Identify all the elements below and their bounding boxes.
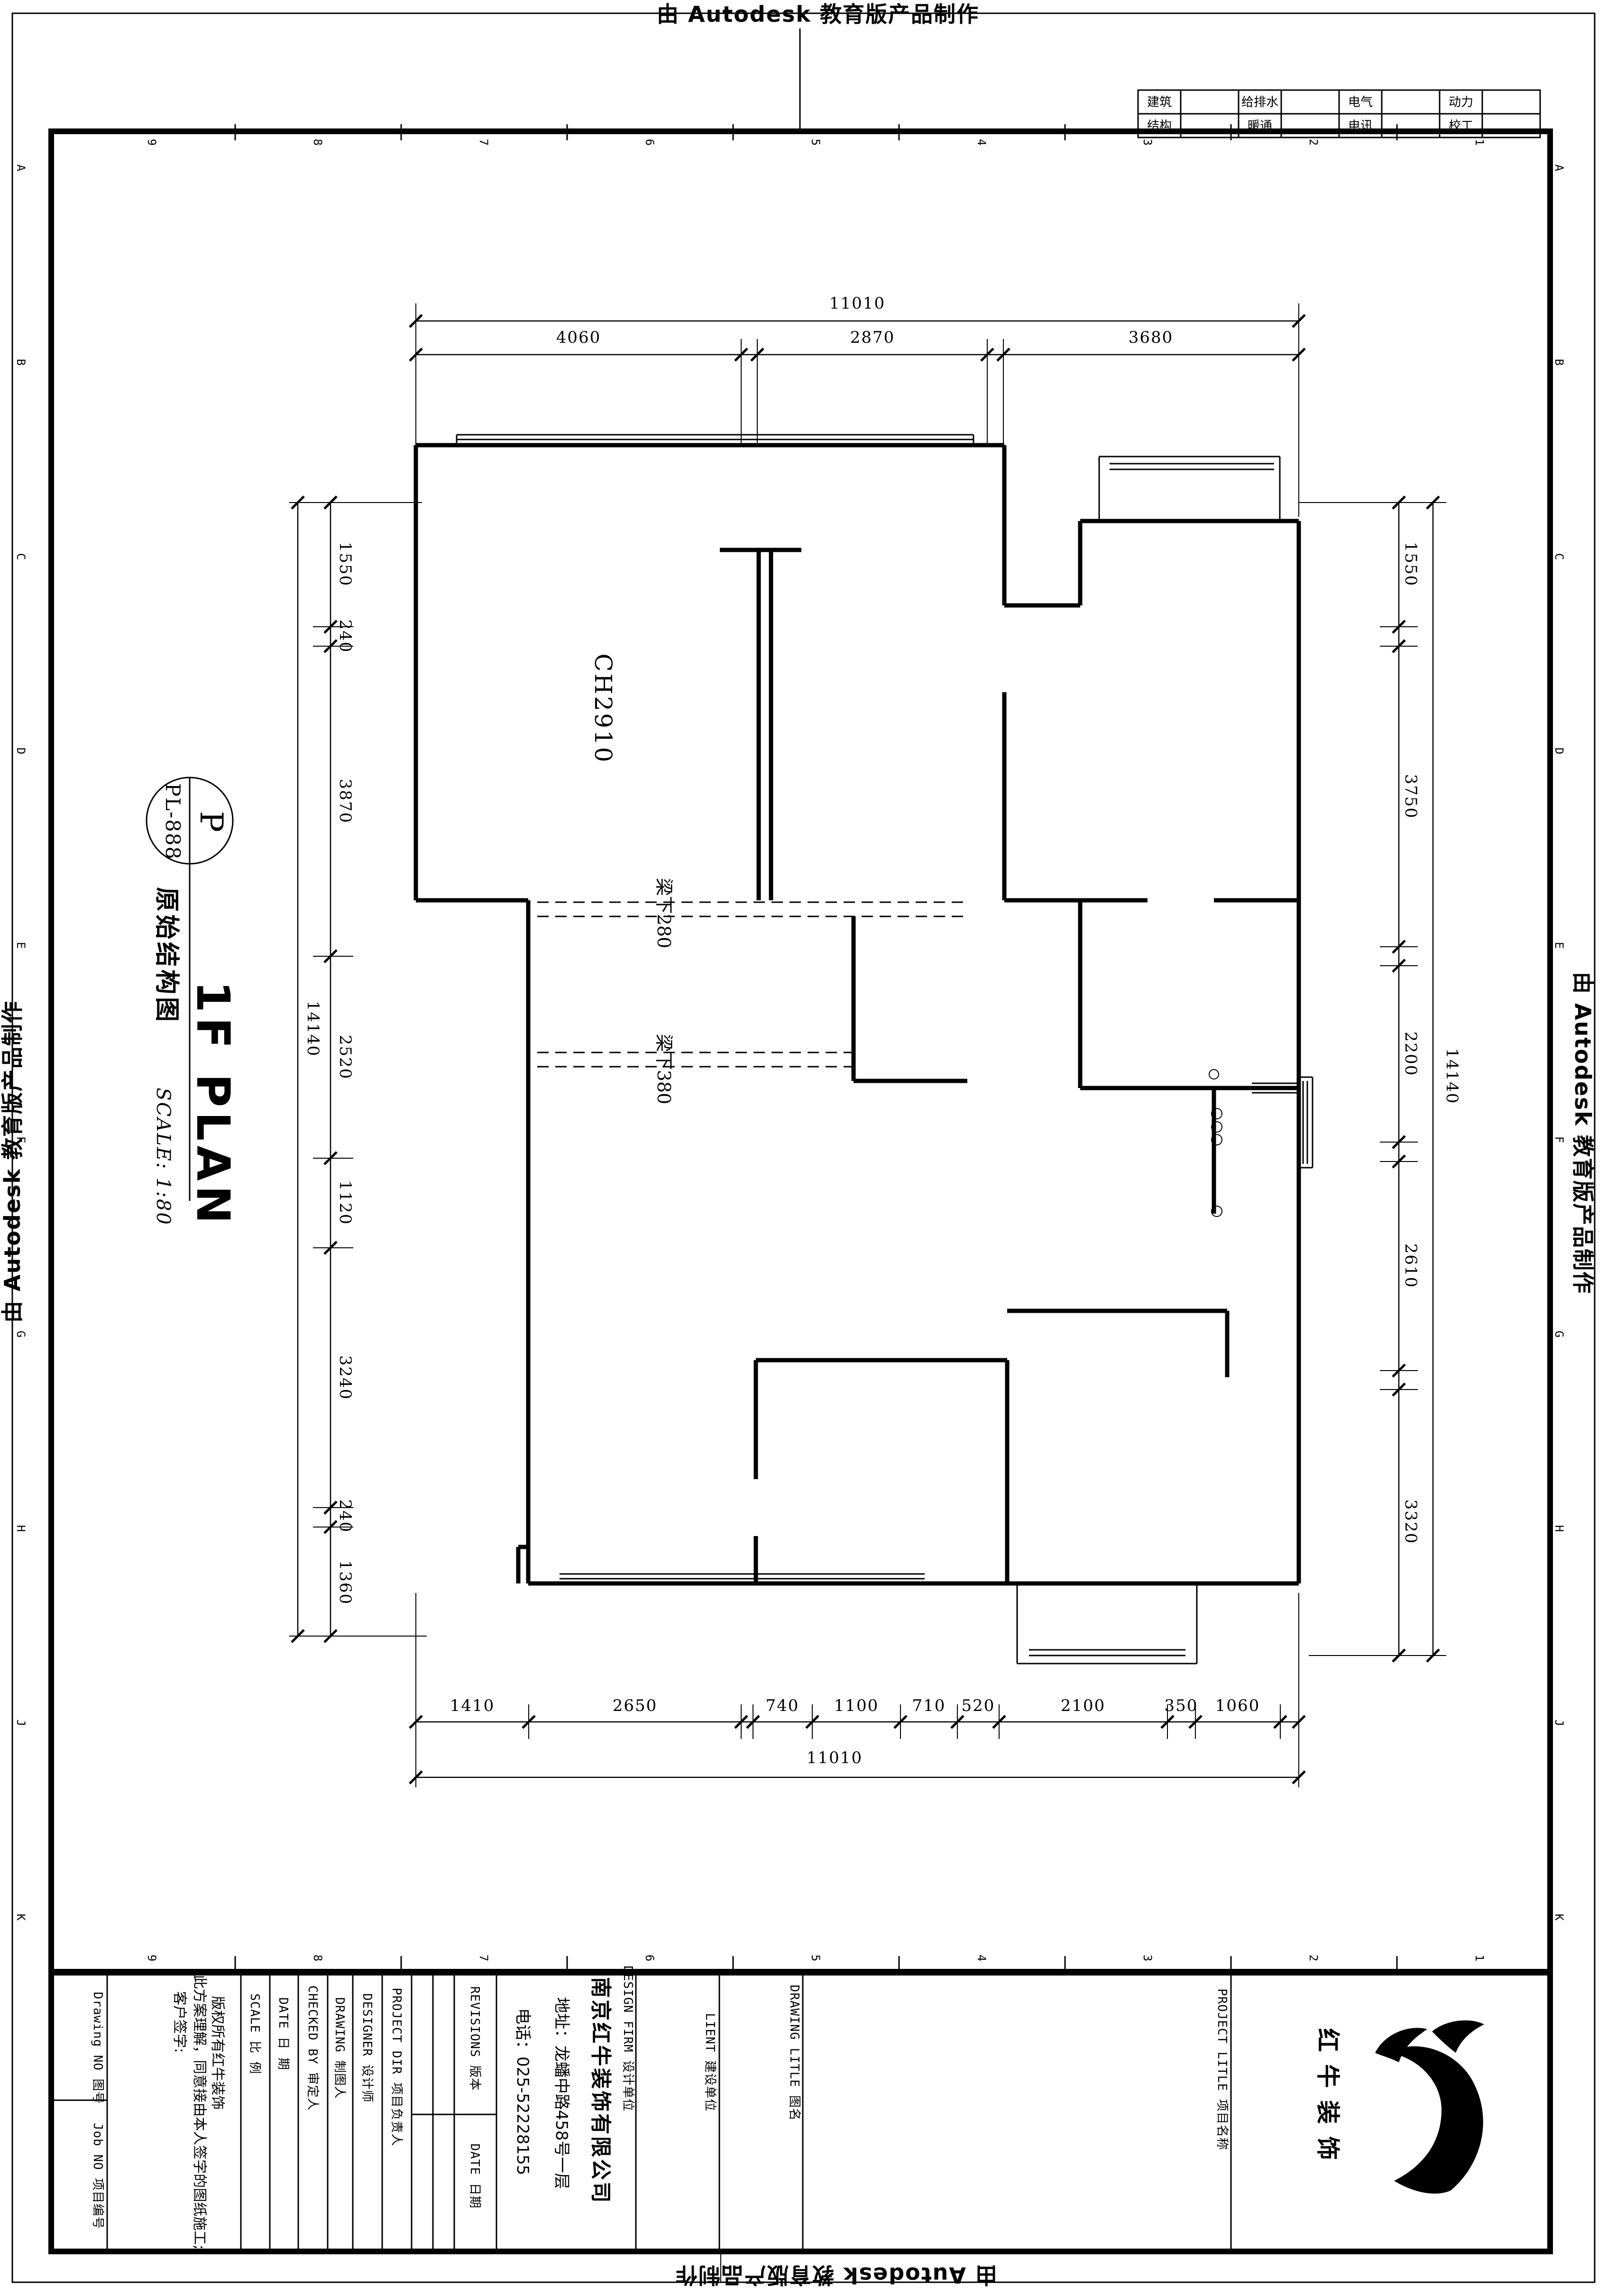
dim-bottom: 1100 [834,1698,879,1714]
dim-top-total: 11010 [829,295,885,311]
watermark-bottom: 由 Autodesk 教育版产品制作 [675,2264,997,2286]
ceiling-height-label: CH2910 [591,653,615,764]
dim-bottom: 1060 [1215,1698,1260,1714]
watermark-left: 由 Autodesk 教育版产品制作 [1,1000,23,1323]
dim-left: 1550 [337,542,353,587]
titleblock-revision-date: DATE 日期 [468,2143,481,2208]
dim-bottom: 710 [912,1698,946,1714]
titleblock-revisions: REVISIONS 版本 [468,1986,481,2091]
zone-number-top: 6 [644,139,655,146]
titleblock-designer: DESIGNER 设计师 [361,1994,373,2103]
zone-letter-left: J [15,1720,27,1726]
dim-left: 3870 [337,779,353,824]
titleblock-drawing-title: DRAWING LITLE 图名 [788,1985,800,2121]
discipline-structure: 结构 [1147,120,1172,132]
dim-bottom-total: 11010 [807,1750,863,1766]
zone-letter-right: E [1553,942,1565,949]
titleblock-client: LIENT 建设单位 [704,2013,716,2112]
logo-bull-icon [1375,2021,1484,2194]
discipline-hvac: 暖通 [1248,120,1272,132]
badge-plan-title: 1F PLAN [190,981,236,1228]
zone-number-top: 5 [810,139,821,146]
zone-number-top: 9 [146,139,157,146]
dim-right: 2610 [1403,1244,1419,1289]
dim-bottom: 740 [766,1698,799,1714]
watermark-top: 由 Autodesk 教育版产品制作 [657,3,979,25]
dim-top: 3680 [1129,329,1174,346]
zone-letter-left: B [15,359,27,366]
badge-scale: SCALE: 1:80 [154,1088,173,1226]
titleblock-drawing-by: DRAWING 制图人 [333,1997,346,2099]
zone-letter-left: H [15,1525,27,1532]
zone-number-bottom: 2 [1308,1955,1319,1961]
zone-letter-right: C [1553,553,1565,560]
zone-number-top: 1 [1474,139,1485,146]
dim-bottom: 350 [1165,1698,1198,1714]
zone-letter-right: G [1553,1331,1565,1337]
dim-left: 1120 [337,1180,353,1226]
zone-number-bottom: 8 [312,1955,323,1961]
discipline-check: 校工 [1449,120,1473,132]
zone-letter-right: B [1553,359,1565,366]
titleblock-copyright-line2: 此方案理解，同意接由本人签字的图纸施工; [192,1975,206,2250]
watermark-right: 由 Autodesk 教育版产品制作 [1572,972,1594,1294]
zone-number-bottom: 5 [810,1955,821,1961]
zone-letter-right: F [1553,1136,1565,1143]
dim-bottom: 2100 [1061,1698,1106,1714]
titleblock-project-title: PROJECT LITLE 项目名称 [1216,1988,1228,2150]
zone-letter-left: E [15,942,27,949]
titleblock-design-firm: DESIGN FIRM 设计单位 [622,1966,634,2112]
plan-drawing-svg [0,0,1607,2296]
dim-right: 2200 [1403,1032,1419,1077]
zone-number-top: 3 [1142,139,1153,146]
dim-left: 240 [337,1500,353,1533]
zone-number-bottom: 9 [146,1955,157,1961]
dim-bottom: 1410 [450,1698,495,1714]
discipline-electrical: 电气 [1348,96,1373,109]
beam-lines [537,902,967,1067]
zone-letter-left: G [15,1331,27,1337]
zone-number-bottom: 1 [1474,1955,1485,1961]
zone-letter-left: K [15,1914,27,1921]
titleblock-company-phone: 电话：025-52228155 [514,2008,531,2175]
extension-lines [289,303,1446,1787]
zone-letter-left: A [15,165,27,171]
dim-left: 2520 [337,1035,353,1080]
drawing-sheet: 由 Autodesk 教育版产品制作 由 Autodesk 教育版产品制作 由 … [0,0,1607,2296]
sheet-borders [12,13,1595,2282]
dimension-ticks [292,315,1439,1784]
discipline-architecture: 建筑 [1147,96,1172,109]
zone-number-bottom: 3 [1142,1955,1153,1961]
discipline-telecom: 电讯 [1348,120,1373,132]
dim-left-total: 14140 [305,1001,321,1057]
badge-code: PL-888 [163,783,183,860]
discipline-power: 动力 [1449,96,1473,109]
dim-right: 3750 [1403,774,1419,819]
windows [457,435,1313,1664]
titleblock-company-address: 地址：龙蟠中路458号一层 [553,1997,569,2189]
dim-left: 3240 [337,1355,353,1400]
zone-number-bottom: 7 [478,1955,489,1961]
titleblock-logo-text: 红牛装饰 [1316,2028,1340,2172]
dim-bottom: 2650 [613,1698,658,1714]
titleblock-project-dir: PROJECT DIR 项目负责人 [390,1988,403,2147]
discipline-plumbing: 给排水 [1241,96,1278,109]
titleblock-date: DATE 日 期 [277,1997,289,2070]
zone-number-bottom: 4 [976,1955,987,1961]
zone-number-top: 4 [976,139,987,146]
dim-top: 4060 [556,329,601,346]
zone-letter-left: C [15,553,27,560]
dim-right: 3320 [1403,1500,1419,1545]
titleblock-checked-by: CHECKED BY 审定人 [306,1985,319,2111]
badge-tag: P [195,811,227,832]
dim-top: 2870 [850,329,895,346]
titleblock-job-no: Job NO 项目编号 [92,2123,104,2230]
beam-label-upper: 梁下280 [655,878,673,949]
zone-number-top: 2 [1308,139,1319,146]
zone-letter-left: D [15,748,27,754]
dim-right: 1550 [1403,542,1419,587]
zone-letter-left: F [15,1136,27,1143]
dim-right-total: 14140 [1444,1048,1460,1104]
titleblock-copyright-line1: 版权所有红牛装饰 [210,1996,224,2110]
zone-number-bottom: 6 [644,1955,655,1961]
titleblock-company-name: 南京红牛装饰有限公司 [590,1977,611,2205]
beam-label-lower: 梁下380 [655,1034,673,1105]
titleblock-scale: SCALE 比 例 [248,1994,261,2075]
zone-number-top: 7 [478,139,489,146]
dim-left: 240 [337,620,353,653]
zone-number-top: 8 [312,139,323,146]
zone-letter-right: J [1553,1720,1565,1726]
zone-letter-right: D [1553,748,1565,754]
zone-letter-right: K [1553,1914,1565,1921]
zone-letter-right: H [1553,1525,1565,1532]
dim-bottom: 520 [962,1698,995,1714]
dimension-lines [298,321,1433,1777]
walls [416,445,1299,1583]
titleblock-client-signature: 客户签字: [172,1991,186,2053]
titleblock-drawing-no: Drawing NO 图号 [92,1992,104,2104]
zone-ticks [235,124,1397,1972]
zone-letter-right: A [1553,165,1565,171]
badge-drawing-name: 原始结构图 [154,887,179,1025]
dim-left: 1360 [337,1560,353,1605]
